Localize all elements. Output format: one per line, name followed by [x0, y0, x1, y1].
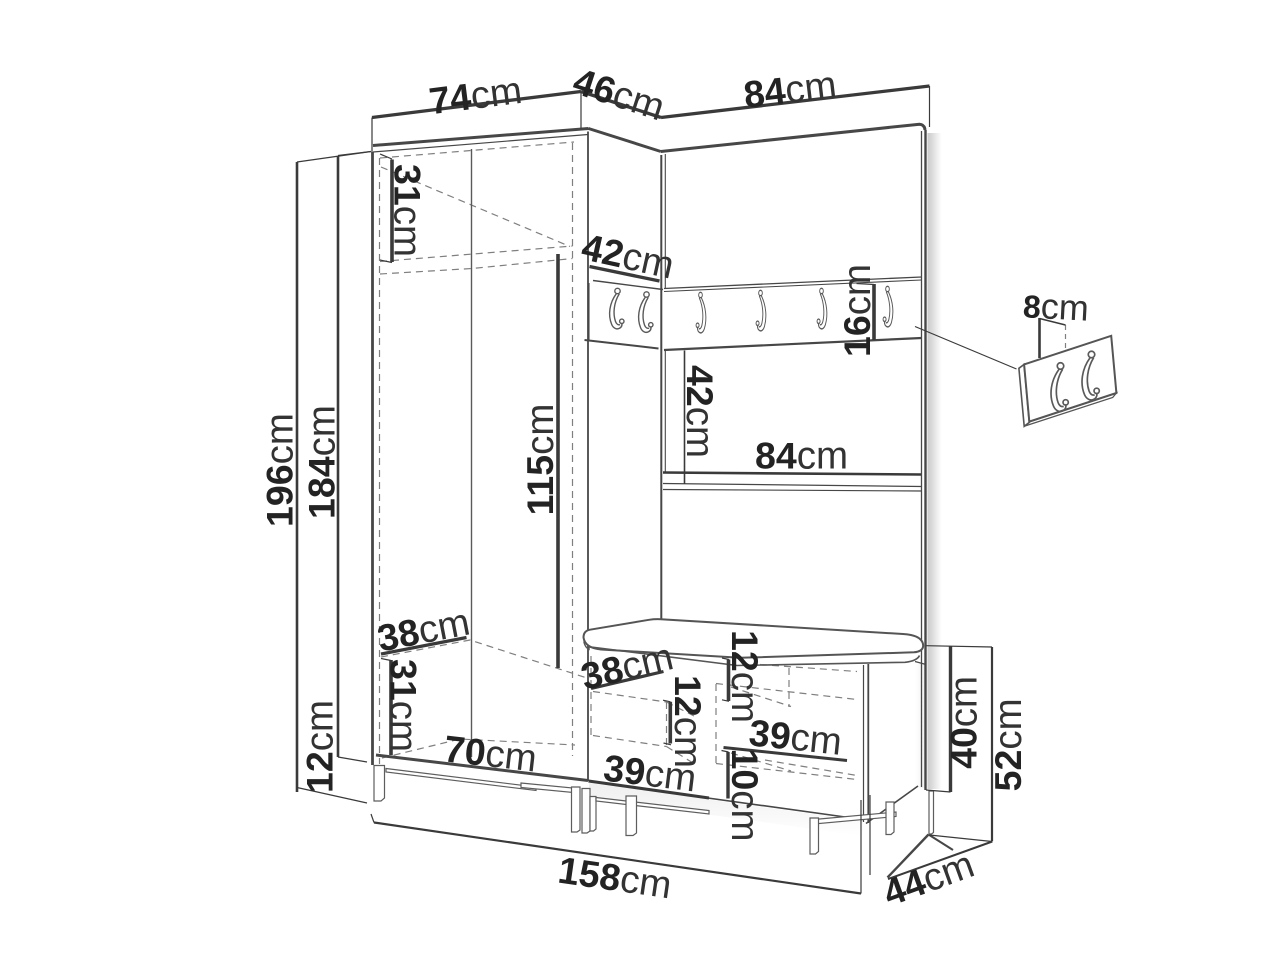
svg-text:16cm: 16cm: [836, 264, 879, 357]
svg-text:52cm: 52cm: [987, 698, 1030, 791]
svg-text:184cm: 184cm: [301, 405, 344, 519]
svg-text:115cm: 115cm: [519, 404, 562, 516]
svg-text:10cm: 10cm: [723, 748, 766, 841]
svg-text:196cm: 196cm: [259, 413, 302, 527]
svg-text:31cm: 31cm: [382, 659, 425, 752]
svg-text:31cm: 31cm: [386, 164, 429, 257]
svg-text:40cm: 40cm: [943, 676, 986, 769]
svg-text:8cm: 8cm: [1022, 284, 1090, 328]
svg-text:42cm: 42cm: [678, 365, 721, 458]
svg-text:84cm: 84cm: [755, 435, 848, 478]
svg-text:12cm: 12cm: [723, 630, 766, 723]
svg-text:12cm: 12cm: [299, 700, 342, 793]
